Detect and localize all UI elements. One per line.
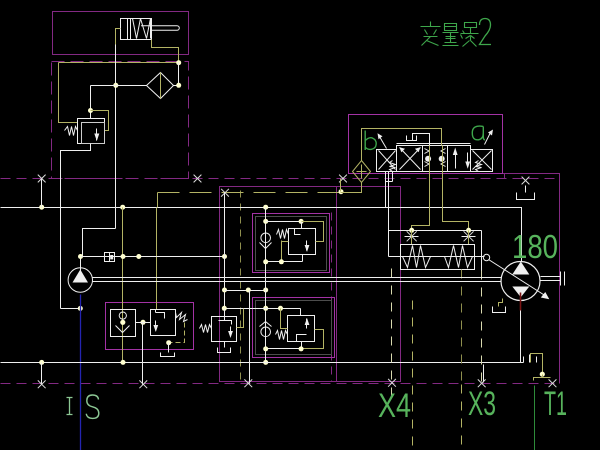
svg-text:X4: X4	[378, 387, 411, 425]
svg-text:X3: X3	[468, 385, 496, 423]
svg-text:180: 180	[512, 228, 558, 265]
svg-text:T1: T1	[544, 385, 567, 423]
